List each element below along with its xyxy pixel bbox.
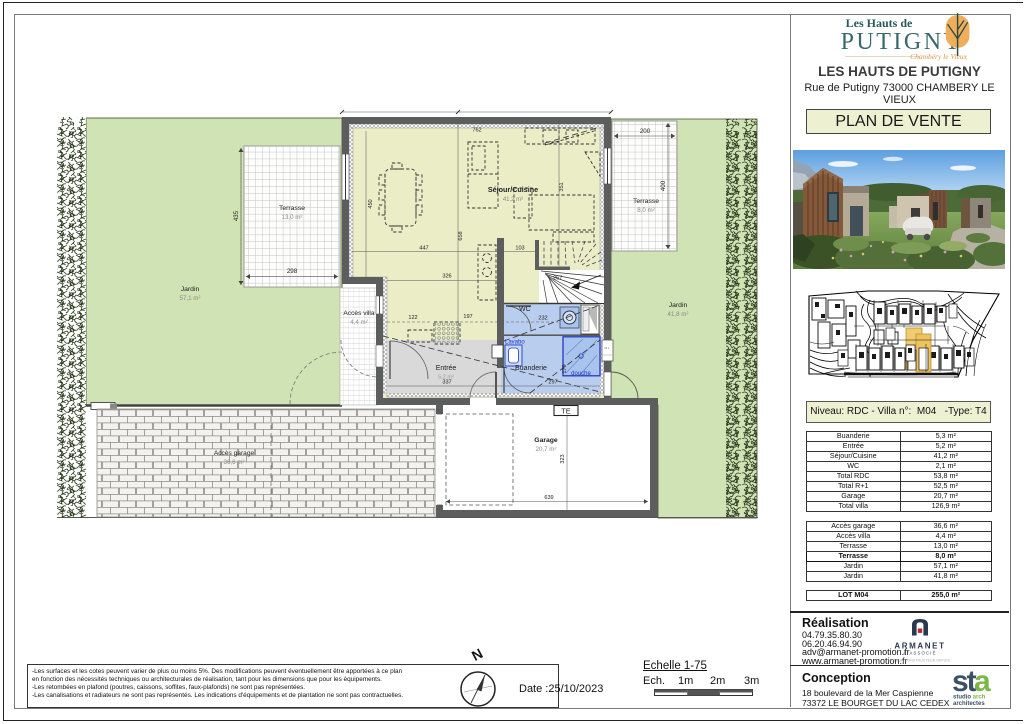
svg-text:4,4 m²: 4,4 m² <box>350 319 368 326</box>
svg-text:20,7 m²: 20,7 m² <box>536 446 557 453</box>
svg-text:Terrasse: Terrasse <box>279 205 305 212</box>
svg-text:337: 337 <box>442 380 451 386</box>
svg-text:57,1 m²: 57,1 m² <box>180 295 201 302</box>
svg-text:179: 179 <box>562 364 568 373</box>
svg-text:435: 435 <box>233 210 240 221</box>
svg-text:197: 197 <box>463 314 472 320</box>
svg-text:41,8 m²: 41,8 m² <box>668 311 689 318</box>
svg-text:267: 267 <box>553 276 562 282</box>
svg-text:400: 400 <box>660 180 667 191</box>
svg-text:450: 450 <box>368 199 374 208</box>
svg-text:TE: TE <box>561 407 571 416</box>
svg-text:41,2 m²: 41,2 m² <box>503 197 523 203</box>
svg-text:st: st <box>952 665 977 698</box>
svg-text:639: 639 <box>544 495 553 501</box>
svg-text:N: N <box>469 645 485 664</box>
svg-text:ARMANET: ARMANET <box>894 642 945 651</box>
svg-text:298: 298 <box>287 268 298 275</box>
svg-text:103: 103 <box>515 246 524 252</box>
svg-text:762: 762 <box>472 128 481 134</box>
svg-text:323: 323 <box>560 454 566 463</box>
svg-text:232: 232 <box>538 316 547 322</box>
svg-text:Lavabo: Lavabo <box>505 340 525 346</box>
svg-text:Jardin: Jardin <box>181 286 200 293</box>
svg-text:658: 658 <box>458 231 464 240</box>
svg-text:122: 122 <box>408 315 417 321</box>
svg-text:Accès garage: Accès garage <box>214 450 255 457</box>
svg-text:Séjour/Cuisine: Séjour/Cuisine <box>488 185 538 194</box>
svg-text:297: 297 <box>548 380 557 386</box>
svg-text:a: a <box>974 665 991 698</box>
svg-text:Jardin: Jardin <box>669 302 688 309</box>
svg-text:447: 447 <box>419 246 428 252</box>
svg-text:36,6 m²: 36,6 m² <box>224 459 245 466</box>
svg-text:Entrée: Entrée <box>436 365 457 372</box>
svg-text:326: 326 <box>442 274 451 280</box>
svg-text:Garage: Garage <box>534 437 558 444</box>
svg-text:Buanderie: Buanderie <box>515 365 547 372</box>
svg-text:351: 351 <box>559 182 565 191</box>
svg-text:architectes: architectes <box>953 701 985 707</box>
svg-text:Terrasse: Terrasse <box>633 198 659 205</box>
svg-text:PROMOTEUR CONSTRUCTEUR DEPUIS: PROMOTEUR CONSTRUCTEUR DEPUIS 1997 <box>888 659 952 663</box>
svg-text:M.L: M.L <box>604 346 609 350</box>
svg-text:13,0 m²: 13,0 m² <box>282 214 303 221</box>
svg-text:WC: WC <box>519 306 531 313</box>
svg-text:8,0 m²: 8,0 m² <box>637 207 655 214</box>
svg-text:& ASSOCIÉ: & ASSOCIÉ <box>903 651 936 656</box>
svg-text:Accès villa: Accès villa <box>343 310 374 317</box>
svg-text:douche: douche <box>571 371 591 377</box>
svg-text:200: 200 <box>640 128 651 135</box>
svg-text:studio arch: studio arch <box>953 695 986 701</box>
